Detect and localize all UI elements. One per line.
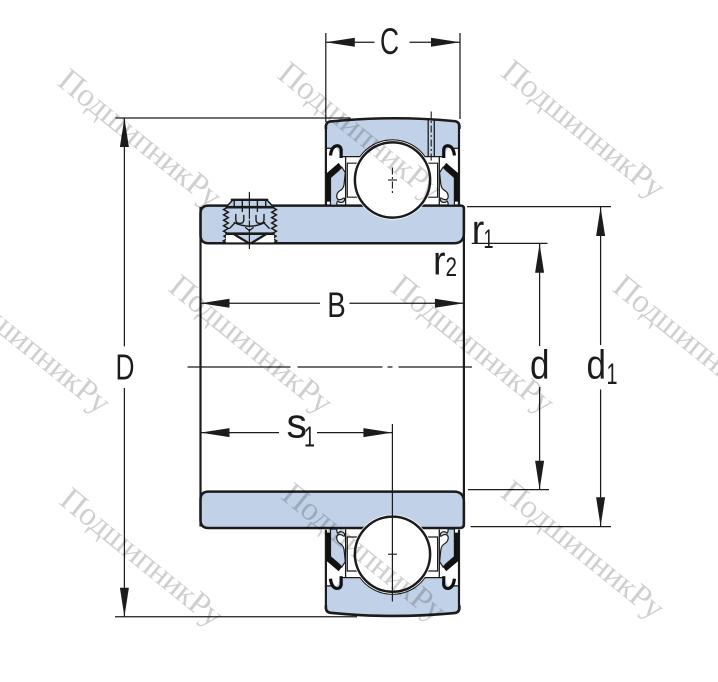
svg-text:1: 1 — [607, 358, 618, 391]
svg-text:1: 1 — [484, 224, 494, 254]
svg-text:r: r — [433, 238, 446, 284]
svg-text:C: C — [380, 21, 399, 62]
svg-text:D: D — [116, 346, 135, 387]
svg-text:2: 2 — [446, 252, 458, 282]
svg-text:1: 1 — [304, 422, 315, 454]
svg-text:d: d — [587, 342, 607, 388]
svg-text:r: r — [472, 207, 485, 253]
svg-text:B: B — [327, 286, 346, 325]
